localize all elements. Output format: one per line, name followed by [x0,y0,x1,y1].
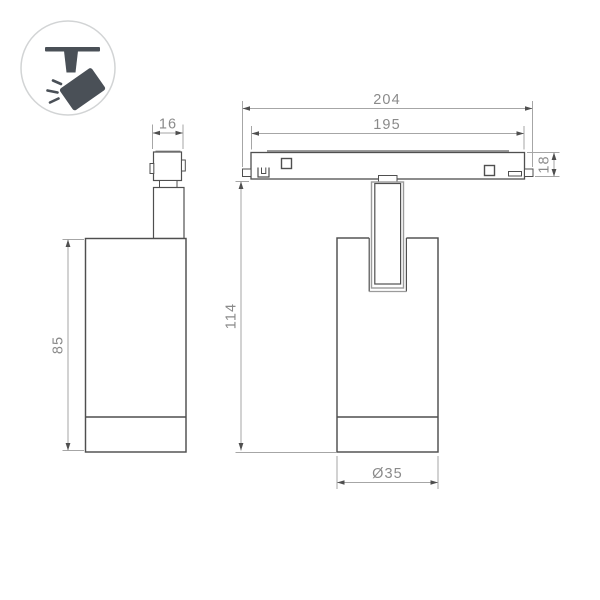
side-lamp-body [86,239,187,453]
arrow-left [243,106,251,111]
side-view: 16 85 [51,117,187,453]
arrow-right [525,106,533,111]
body-height-label: 85 [51,336,67,354]
track-end-tab-left [243,169,252,177]
track-height-label: 18 [537,155,553,173]
arrow-right [517,131,525,136]
track-end-tab-right [525,169,534,177]
drawing-svg: 16 85 204 [0,0,600,600]
arrow-down [66,443,71,451]
track-overall-length-label: 204 [373,92,401,108]
fixture-height-label: 114 [224,303,240,329]
arrow-left [252,131,260,136]
spotlight-icon-badge [21,21,115,115]
side-arm [154,188,185,239]
technical-drawing-page: 16 85 204 [0,0,600,600]
arrow-up [66,240,71,248]
dim-body-height: 85 [51,240,85,451]
icon-ceiling-bar [45,47,100,52]
arrow-up [239,182,244,190]
side-adapter-clip-left [150,164,154,174]
arrow-right [431,480,439,485]
dim-fixture-height: 114 [224,182,337,453]
body-diameter-label: Ø35 [372,466,403,482]
front-arm-outer [372,182,404,288]
adapter-width-label: 16 [159,117,177,133]
track-hole-right [485,166,495,176]
side-adapter-box [154,152,182,181]
dim-track-rail-length: 195 [252,117,525,150]
track-hole-left [282,159,292,169]
front-view: 204 195 18 [224,92,560,489]
dim-adapter-width: 16 [153,117,184,150]
arrow-down [239,443,244,451]
arrow-left [337,480,345,485]
side-adapter-neck [160,181,178,188]
dim-body-diameter: Ø35 [337,456,438,489]
track-slot-right [509,172,522,177]
track-rail-length-label: 195 [373,117,401,133]
side-adapter-clip-right [182,160,186,171]
